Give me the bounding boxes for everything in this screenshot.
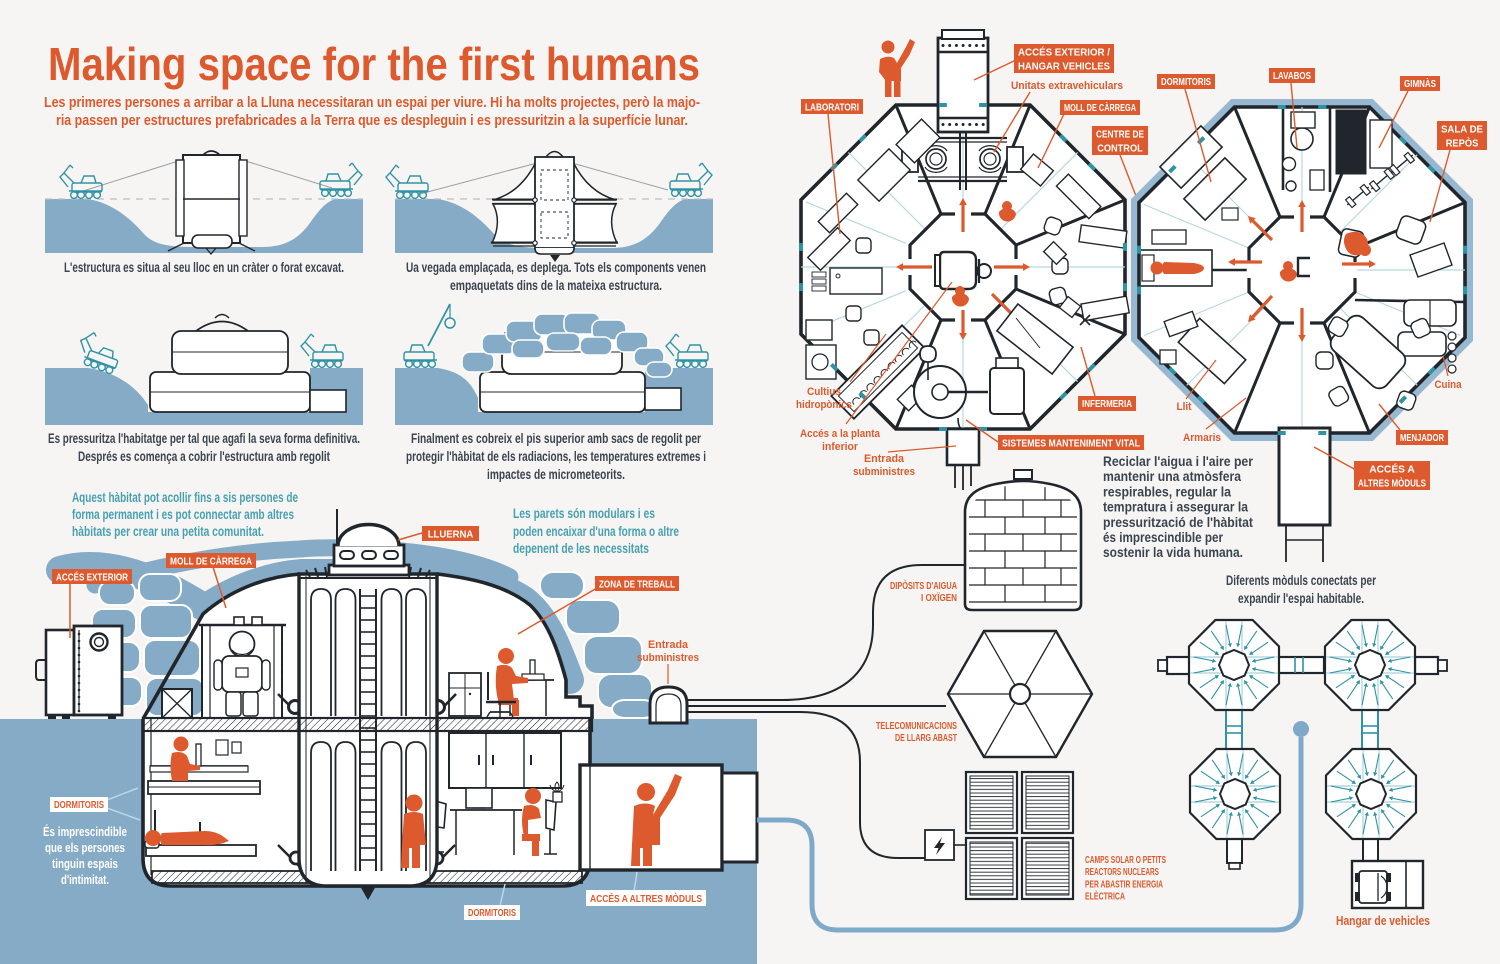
svg-text:pressurització de l'hàbitat: pressurització de l'hàbitat	[1103, 515, 1253, 530]
svg-text:expandir l'espai habitable.: expandir l'espai habitable.	[1238, 591, 1364, 606]
svg-text:INFERMERIA: INFERMERIA	[1082, 399, 1132, 410]
svg-text:És imprescindible: És imprescindible	[43, 824, 127, 839]
svg-text:LABORATORI: LABORATORI	[805, 101, 859, 113]
svg-text:Hangar de vehicles: Hangar de vehicles	[1336, 913, 1430, 928]
svg-text:Cultius: Cultius	[807, 386, 841, 398]
svg-text:ACCÉS A: ACCÉS A	[1369, 462, 1415, 475]
svg-text:REACTORS NUCLEARS: REACTORS NUCLEARS	[1085, 866, 1159, 878]
svg-text:respirables, regular la: respirables, regular la	[1103, 484, 1231, 499]
svg-text:és imprescindible per: és imprescindible per	[1103, 530, 1224, 545]
svg-text:mantenir una atmòsfera: mantenir una atmòsfera	[1103, 469, 1241, 484]
svg-text:ACCÉS A ALTRES MÒDULS: ACCÉS A ALTRES MÒDULS	[590, 892, 702, 905]
svg-text:subministres: subministres	[853, 466, 915, 478]
svg-text:DORMITORIS: DORMITORIS	[468, 908, 516, 919]
svg-text:MOLL DE CÀRREGA: MOLL DE CÀRREGA	[170, 554, 252, 567]
svg-text:GIMNÀS: GIMNÀS	[1404, 77, 1436, 90]
svg-text:DORMITORIS: DORMITORIS	[54, 800, 104, 811]
svg-text:MOLL DE CÀRREGA: MOLL DE CÀRREGA	[1064, 101, 1136, 114]
svg-text:Finalment es cobreix el pis su: Finalment es cobreix el pis superior amb…	[411, 430, 701, 446]
svg-text:subministres: subministres	[637, 652, 699, 664]
svg-text:forma permanent i es pot conne: forma permanent i es pot connectar amb a…	[72, 506, 294, 522]
svg-text:que els persones: que els persones	[45, 840, 125, 855]
svg-text:Diferents mòduls conectats per: Diferents mòduls conectats per	[1226, 573, 1377, 588]
svg-text:Unitats extravehiculars: Unitats extravehiculars	[1011, 80, 1123, 92]
svg-text:ELÈCTRICA: ELÈCTRICA	[1085, 890, 1125, 903]
svg-text:tempratura i assegurar la: tempratura i assegurar la	[1103, 500, 1248, 515]
svg-text:Aquest hàbitat pot acollir fin: Aquest hàbitat pot acollir fins a sis pe…	[72, 489, 298, 505]
svg-text:DIPÒSITS D'AIGUA: DIPÒSITS D'AIGUA	[890, 579, 957, 592]
svg-text:Reciclar l'aigua i l'aire per: Reciclar l'aigua i l'aire per	[1103, 454, 1254, 469]
svg-text:Accés a la planta: Accés a la planta	[800, 428, 881, 440]
svg-text:ria passen per estructures pre: ria passen per estructures prefabricades…	[56, 112, 688, 129]
svg-text:Entrada: Entrada	[648, 639, 689, 651]
svg-text:LLUERNA: LLUERNA	[428, 528, 474, 540]
svg-text:Després es comença a cobrir l': Després es comença a cobrir l'estructura…	[78, 448, 330, 464]
svg-text:Es pressuritza l'habitatge per: Es pressuritza l'habitatge per tal que a…	[48, 430, 360, 446]
svg-text:Llit: Llit	[1177, 401, 1192, 413]
svg-text:poden encaixar d'una forma o a: poden encaixar d'una forma o altre	[513, 523, 679, 539]
svg-text:CONTROL: CONTROL	[1097, 142, 1143, 154]
svg-text:Les parets són modulars i es: Les parets són modulars i es	[513, 505, 655, 521]
svg-text:DE LLARG ABAST: DE LLARG ABAST	[895, 732, 957, 744]
svg-text:ACCÉS EXTERIOR: ACCÉS EXTERIOR	[56, 570, 128, 583]
svg-text:DORMITORIS: DORMITORIS	[1161, 77, 1211, 88]
svg-text:Ua vegada emplaçada, es depleg: Ua vegada emplaçada, es deplega. Tots el…	[406, 259, 706, 275]
svg-text:CAMPS SOLAR O PETITS: CAMPS SOLAR O PETITS	[1085, 854, 1166, 866]
svg-text:I OXÏGEN: I OXÏGEN	[921, 591, 957, 604]
svg-text:impactes de micrometeorits.: impactes de micrometeorits.	[487, 466, 625, 482]
svg-text:empaquetats dins de la mateixa: empaquetats dins de la mateixa estructur…	[450, 277, 662, 293]
svg-text:Making space for the first hum: Making space for the first humans	[48, 38, 700, 90]
svg-text:Entrada: Entrada	[864, 453, 905, 465]
svg-text:MENJADOR: MENJADOR	[1400, 433, 1445, 444]
svg-text:HANGAR VEHICLES: HANGAR VEHICLES	[1018, 60, 1110, 72]
svg-text:LAVABOS: LAVABOS	[1273, 71, 1311, 82]
svg-text:Les primeres persones a arriba: Les primeres persones a arribar a la Llu…	[44, 94, 700, 111]
svg-text:Cuina: Cuina	[1435, 379, 1463, 391]
svg-text:d'intimitat.: d'intimitat.	[61, 872, 109, 887]
svg-text:TELECOMUNICACIONS: TELECOMUNICACIONS	[876, 720, 957, 732]
svg-text:REPÒS: REPÒS	[1446, 136, 1479, 149]
svg-text:ACCÉS EXTERIOR /: ACCÉS EXTERIOR /	[1018, 45, 1110, 58]
svg-text:hàbitats per crear una petita: hàbitats per crear una petita comunitat.	[72, 523, 264, 539]
svg-text:protegir l'hàbitat de els radi: protegir l'hàbitat de els radiacions, le…	[406, 448, 706, 464]
svg-text:tinguin espais: tinguin espais	[52, 856, 118, 871]
svg-text:SALA DE: SALA DE	[1441, 123, 1483, 135]
svg-text:depenent de les necessitats: depenent de les necessitats	[513, 540, 649, 556]
svg-text:Armaris: Armaris	[1183, 432, 1221, 444]
svg-text:SISTEMES MANTENIMENT VITAL: SISTEMES MANTENIMENT VITAL	[1002, 437, 1140, 449]
svg-text:L'estructura es situa al seu l: L'estructura es situa al seu lloc en un …	[64, 259, 344, 275]
svg-text:CENTRE DE: CENTRE DE	[1096, 128, 1144, 140]
svg-text:ALTRES MÒDULS: ALTRES MÒDULS	[1358, 476, 1426, 489]
svg-text:hidropònics: hidropònics	[796, 399, 852, 411]
svg-text:ZONA DE TREBALL: ZONA DE TREBALL	[599, 578, 675, 590]
svg-text:inferior: inferior	[822, 441, 859, 453]
svg-text:sostenir la vida humana.: sostenir la vida humana.	[1103, 545, 1243, 560]
svg-text:PER ABASTIR ENERGIA: PER ABASTIR ENERGIA	[1085, 878, 1163, 890]
